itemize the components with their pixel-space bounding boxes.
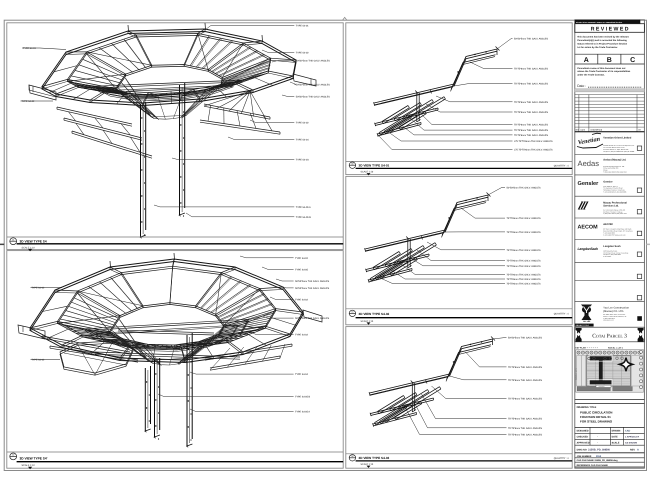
svg-text:FOR STEEL DRAWING: FOR STEEL DRAWING [580, 419, 613, 423]
svg-text:3D VIEW TYPE S4: 3D VIEW TYPE S4 [20, 239, 47, 243]
svg-text:Plaza, 1 Harbour Road, Wanchai: Plaza, 1 Harbour Road, Wanchai, HK [603, 316, 626, 318]
svg-text:75*75*6mm THK GALV. ANGLES: 75*75*6mm THK GALV. ANGLES [507, 217, 542, 220]
svg-text:CAD FILE NAME 3150B_PD_8NBW.dw: CAD FILE NAME 3150B_PD_8NBW.dwg [577, 459, 619, 462]
svg-text:AIA Tower, 7 Andar J-K, Macau: AIA Tower, 7 Andar J-K, Macau [603, 211, 622, 213]
svg-text:TYPE S4-02: TYPE S4-02 [295, 257, 308, 260]
svg-text:FOUNTAIN DETAIL 01: FOUNTAIN DETAIL 01 [580, 415, 611, 419]
svg-text:Services Ltd.: Services Ltd. [603, 204, 619, 207]
svg-text:TYPE S4-05 A: TYPE S4-05 A [295, 411, 310, 414]
svg-text:T +852.2810.0303 F +852.2810.: T +852.2810.0303 F +852.2810.0606 [603, 192, 626, 194]
svg-text:DESCRIPTION: DESCRIPTION [591, 129, 603, 132]
svg-text:China Law Building 16/F,: China Law Building 16/F, [603, 168, 619, 170]
svg-text:QUANTITY : 4: QUANTITY : 4 [554, 164, 569, 167]
svg-text:16-20 Chater Road, Central, Ho: 16-20 Chater Road, Central, Hong Kong [603, 252, 628, 254]
svg-text:TYPE S4-05 B: TYPE S4-05 B [296, 216, 311, 219]
svg-text:50*50*5mm THK GALV. ANGLES: 50*50*5mm THK GALV. ANGLES [296, 60, 331, 63]
svg-text:T (853) 2872 3282 F (853) 28: T (853) 2872 3282 F (853) 2872 3228 [603, 213, 626, 215]
svg-text:PARCEL 1, LOT 2: PARCEL 1, LOT 2 [608, 347, 623, 350]
svg-text:Consultant review of this: Consultant review of this document does … [577, 67, 625, 70]
svg-text:50*50*5mm THK GALV. ANGLES: 50*50*5mm THK GALV. ANGLES [295, 317, 330, 320]
svg-text:YAU LEE: YAU LEE [583, 320, 591, 323]
svg-text:R E V I E W E D: R E V I E W E D [591, 26, 629, 32]
svg-text:75*75*6mm THK GALV. ANGLES: 75*75*6mm THK GALV. ANGLES [507, 260, 542, 263]
svg-text:SCALE: SCALE [612, 441, 620, 444]
svg-text:Cotai Parcel 3: Cotai Parcel 3 [592, 333, 627, 339]
svg-text:Rural Committee Road, Shatin,: Rural Committee Road, Shatin, NT, Hong K… [603, 231, 632, 233]
svg-text:50*50*5mm THK GALV. ANGLES: 50*50*5mm THK GALV. ANGLES [295, 287, 330, 290]
svg-text:3D VIEW TYPE S4-01: 3D VIEW TYPE S4-01 [359, 164, 390, 168]
svg-text:75*75*6mm THK GALV. ANGLES: 75*75*6mm THK GALV. ANGLES [508, 366, 543, 369]
svg-text:03: 03 [351, 163, 353, 166]
svg-text:75*75*6mm THK GALV. ANGLES: 75*75*6mm THK GALV. ANGLES [507, 278, 542, 281]
svg-text:TYPE S4-02: TYPE S4-02 [296, 122, 309, 125]
svg-text:L75 75*75*6mm THK GALV. ANGLES: L75 75*75*6mm THK GALV. ANGLES [514, 140, 553, 143]
svg-text:Executive Offices-L2, Taipa, M: Executive Offices-L2, Taipa, Macau SAR [603, 149, 628, 151]
svg-text:Av. Comercial de Macau, 251A-3: Av. Comercial de Macau, 251A-301 [603, 209, 625, 211]
svg-text:SCALE 1:10: SCALE 1:10 [22, 464, 36, 467]
svg-text:75*75*6mm THK GALV. ANGLES: 75*75*6mm THK GALV. ANGLES [514, 129, 549, 132]
svg-text:F +852 3922 9797 www.aecom.co: F +852 3922 9797 www.aecom.com [603, 234, 626, 236]
svg-text:75*75*6mm THK GALV. ANGLES: 75*75*6mm THK GALV. ANGLES [514, 101, 549, 104]
svg-text:75*75*6mm THK GALV. ANGLES: 75*75*6mm THK GALV. ANGLES [514, 83, 549, 86]
svg-text:Venetian Orient Limited: Venetian Orient Limited [603, 136, 631, 139]
svg-text:75*75*6mm THK GALV. ANGLES: 75*75*6mm THK GALV. ANGLES [508, 397, 543, 400]
svg-text:TYPE S4-04: TYPE S4-04 [296, 138, 309, 141]
svg-text:TYPE S4-02: TYPE S4-02 [32, 287, 45, 290]
svg-text:Telephone: (853) 81 118888: Telephone: (853) 81 118888 Fax: (853) 81… [603, 151, 634, 153]
svg-text:APPROVED: APPROVED [577, 441, 590, 444]
svg-text:REV: REV [630, 449, 635, 452]
svg-text:QUANTITY : 4: QUANTITY : 4 [554, 313, 569, 316]
svg-text:www.yaulee.com: www.yaulee.com [603, 320, 614, 322]
svg-text:PUBLIC CIRCULATION: PUBLIC CIRCULATION [580, 410, 612, 414]
svg-text:75*75*6mm THK GALV. ANGLES: 75*75*6mm THK GALV. ANGLES [507, 231, 542, 234]
svg-text:C: C [630, 57, 635, 64]
svg-text:Suite 1508-10, Tower 1,: Suite 1508-10, Tower 1, [603, 186, 618, 188]
svg-text:04: 04 [351, 311, 353, 314]
svg-text:QUANTITY : 4: QUANTITY : 4 [554, 457, 569, 460]
svg-text:Gensler: Gensler [603, 180, 612, 183]
svg-text:L75 75*75*6mm THK GALV. ANGLES: L75 75*75*6mm THK GALV. ANGLES [514, 149, 553, 152]
svg-text:TYPE S4-04: TYPE S4-04 [295, 373, 308, 376]
svg-text:TYPE S4-05 B: TYPE S4-05 B [295, 396, 310, 399]
svg-text:T +852 3922 9000: T +852 3922 9000 [603, 232, 615, 234]
svg-text:50*50*5mm THK GALV. ANGLES: 50*50*5mm THK GALV. ANGLES [296, 96, 331, 99]
svg-text:relieve the Trade Contracto: relieve the Trade Contractor of its resp… [577, 70, 631, 73]
svg-text:05: 05 [351, 455, 353, 458]
svg-text:5.4 for action by the Tra: 5.4 for action by the Trade Contractor. [577, 46, 618, 49]
svg-text:JOB NUMBER: JOB NUMBER [577, 455, 592, 458]
svg-text:TYPE S4-02: TYPE S4-02 [295, 299, 308, 302]
svg-text:F 2576 0416: F 2576 0416 [603, 256, 611, 258]
svg-text:T (852) 2832 8123: T (852) 2832 8123 [603, 318, 615, 320]
svg-text:DWG NO: DWG NO [577, 449, 587, 452]
svg-text:Macau: Macau [603, 170, 607, 172]
svg-text:The Venetian Macao-Resort-Hote: The Venetian Macao-Resort-Hotel, [603, 147, 625, 149]
svg-text:KEY PLAN: KEY PLAN [575, 347, 586, 350]
svg-text:3150: 3150 [596, 455, 602, 458]
svg-text:Langdon Seah: Langdon Seah [603, 245, 621, 248]
svg-text:DESIGNED: DESIGNED [577, 430, 589, 433]
svg-text:CAD: CAD [625, 430, 630, 433]
svg-text:TYPE S4-05 A: TYPE S4-05 A [296, 206, 311, 209]
svg-text:1 APR/2013 R: 1 APR/2013 R [625, 436, 639, 439]
svg-text:under the Trade Contract.: under the Trade Contract. [577, 74, 605, 77]
svg-text:75*75*6mm THK GALV. ANGLES: 75*75*6mm THK GALV. ANGLES [507, 282, 542, 285]
svg-text:28/F Alexandra House,: 28/F Alexandra House, [603, 250, 618, 252]
svg-text:SCALE 1:10: SCALE 1:10 [22, 246, 36, 249]
svg-text:50*50*5mm THK GALV. ANGLES: 50*50*5mm THK GALV. ANGLES [514, 38, 549, 41]
svg-text:DRAWING TITLE: DRAWING TITLE [577, 406, 597, 409]
svg-text:This document has been rev: This document has been revised by the re… [577, 36, 629, 39]
svg-text:Date :: Date : [577, 84, 586, 88]
svg-text:50*50*5mm THK GALV. ANGLES: 50*50*5mm THK GALV. ANGLES [295, 280, 330, 283]
svg-text:FOUNTAIN: FOUNTAIN [599, 386, 605, 388]
svg-text:CHECKED: CHECKED [577, 436, 589, 439]
svg-text:75*75*6mm THK GALV. ANGLES: 75*75*6mm THK GALV. ANGLES [508, 379, 543, 382]
svg-text:AECOM: AECOM [578, 225, 599, 231]
svg-text:75*75*6mm THK GALV. ANGLES: 75*75*6mm THK GALV. ANGLES [514, 68, 549, 71]
svg-text:75*75*6mm THK GALV. ANGLES: 75*75*6mm THK GALV. ANGLES [507, 265, 542, 268]
svg-text:75*75*6mm THK GALV. ANGLES: 75*75*6mm THK GALV. ANGLES [507, 273, 542, 276]
svg-text:AECOM: AECOM [603, 223, 612, 226]
svg-text:PROJECT TITLE: PROJECT TITLE [576, 324, 590, 327]
svg-text:50*50*5mm THK GALV. ANGLES: 50*50*5mm THK GALV. ANGLES [508, 336, 543, 339]
svg-text:3D VIEW TYPE S4-02: 3D VIEW TYPE S4-02 [359, 312, 390, 316]
svg-text:3150B_PD_8NBW: 3150B_PD_8NBW [588, 449, 610, 452]
svg-text:(Macau) CO. LTD.: (Macau) CO. LTD. [603, 310, 624, 313]
svg-text:75*75*6mm THK GALV. ANGLES: 75*75*6mm THK GALV. ANGLES [508, 433, 543, 436]
svg-text:TYPE S4-01: TYPE S4-01 [296, 24, 309, 27]
svg-text:3D VIEW TYPE S4-03: 3D VIEW TYPE S4-03 [359, 456, 390, 460]
svg-text:A: A [584, 57, 589, 64]
svg-text:50*50*5mm THK GALV. ANGLES: 50*50*5mm THK GALV. ANGLES [296, 83, 331, 86]
svg-text:DRAWN: DRAWN [612, 430, 621, 433]
svg-text:B: B [607, 57, 612, 64]
svg-text:AS SHOWN: AS SHOWN [625, 441, 637, 444]
svg-text:TYPE S4-03: TYPE S4-03 [296, 159, 309, 162]
svg-text:TYPE S4-02: TYPE S4-02 [32, 359, 45, 362]
svg-text:TYPE S4-02: TYPE S4-02 [295, 334, 308, 337]
svg-text:Tsimshatsui, Kowloon, Hong Kon: Tsimshatsui, Kowloon, Hong Kong [603, 190, 624, 192]
svg-text:Avenida da Praia Grande No. 40: Avenida da Praia Grande No. 409 [603, 166, 624, 168]
svg-text:50*50*5mm THK GALV. ANGLES: 50*50*5mm THK GALV. ANGLES [507, 186, 542, 189]
svg-text:TYPE S4-02: TYPE S4-02 [296, 51, 309, 54]
svg-text:75*75*6mm THK GALV. ANGLES: 75*75*6mm THK GALV. ANGLES [507, 249, 542, 252]
svg-text:Aedas (Macau) Ltd.: Aedas (Macau) Ltd. [603, 159, 626, 162]
svg-text:status referred to in Proj: status referred to in Project Procedure … [577, 42, 628, 45]
svg-text:TYPE S4-01: TYPE S4-01 [23, 47, 36, 50]
svg-text:75*75*6mm THK GALV. ANGLES: 75*75*6mm THK GALV. ANGLES [508, 418, 543, 421]
svg-text:Gensler: Gensler [578, 180, 600, 187]
svg-text:REFERENCE CAD FILE NAME: REFERENCE CAD FILE NAME [577, 464, 609, 467]
svg-text:TYPE S4-02: TYPE S4-02 [22, 100, 35, 103]
svg-text:Estrada da Baia de N. Senhora: Estrada da Baia de N. Senhora da Esperan… [603, 145, 634, 147]
svg-text:T (853) 2833 1088 F (853) 28: T (853) 2833 1088 F (853) 2833 1028 [603, 172, 626, 174]
svg-text:75*75*6mm THK GALV. ANGLES: 75*75*6mm THK GALV. ANGLES [514, 134, 549, 137]
svg-text:DATE: DATE [612, 436, 619, 439]
svg-text:LangdonSeah: LangdonSeah [578, 247, 598, 251]
svg-text:Consultant(s)(s) and is acc: Consultant(s)(s) and is accorded the fol… [577, 39, 627, 42]
svg-text:3D VIEW TYPE S4': 3D VIEW TYPE S4' [20, 457, 48, 461]
svg-text:A: A [637, 449, 639, 452]
svg-text:TYPE S4-05: TYPE S4-05 [295, 268, 308, 271]
svg-text:Telephone: (852) 2830 3500: Telephone: (852) 2830 3500 [603, 254, 621, 256]
svg-text:75*75*6mm THK GALV. ANGLES: 75*75*6mm THK GALV. ANGLES [508, 427, 543, 430]
svg-text:8/F Tower 2, Grand Central Pla: 8/F Tower 2, Grand Central Plaza, 138 Sh… [603, 229, 631, 231]
svg-text:The Gateway, 25 Canton Road: The Gateway, 25 Canton Road [603, 188, 622, 190]
svg-text:75*75*6mm THK GALV. ANGLES: 75*75*6mm THK GALV. ANGLES [514, 124, 549, 127]
svg-text:Aedas: Aedas [578, 159, 600, 168]
svg-text:Rm 1905, Office Tower, Convent: Rm 1905, Office Tower, Convention [603, 314, 625, 316]
svg-text:75*75*6mm THK GALV. ANGLES: 75*75*6mm THK GALV. ANGLES [514, 111, 549, 114]
